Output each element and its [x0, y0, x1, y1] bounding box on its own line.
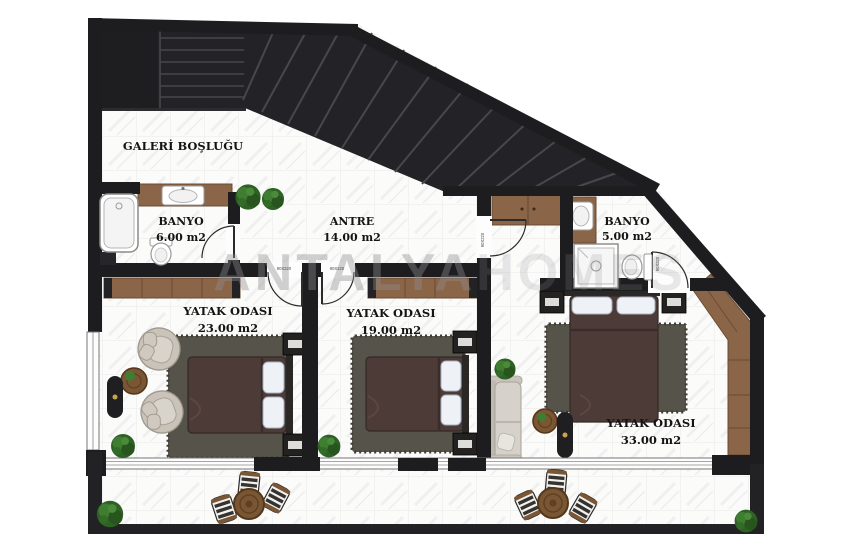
- room-label-galeri: GALERİ BOŞLUĞU: [123, 139, 243, 153]
- plant-antre-1: [235, 184, 260, 209]
- door-size-label: 90X220: [330, 266, 345, 271]
- watermark: ANTALYAHOMES: [213, 244, 687, 302]
- room-label-banyo-right: BANYO: [604, 215, 650, 228]
- door-size-label: 90X220: [277, 266, 292, 271]
- floor-plan-svg: ANTALYAHOMES GALERİ BOŞLUĞU BANYO 6.00 m…: [0, 0, 850, 550]
- room-area-bedroom-middle: 19.00 m2: [361, 323, 421, 337]
- wall-left: [88, 18, 102, 332]
- floor-plan-page: ANTALYAHOMES GALERİ BOŞLUĞU BANYO 6.00 m…: [0, 0, 850, 550]
- door-size-label: 90X220: [655, 256, 660, 271]
- door-size-label: 90X220: [480, 232, 485, 247]
- plant-balcony-left: [97, 501, 123, 527]
- plant-bedroom-right: [494, 358, 515, 379]
- room-area-banyo-left: 6.00 m2: [156, 231, 206, 244]
- balcony-table-left: [234, 489, 264, 519]
- room-area-bedroom-left: 23.00 m2: [198, 321, 258, 335]
- wall-right: [750, 316, 764, 464]
- wall-hall-top: [443, 186, 655, 196]
- side-table: [121, 368, 147, 394]
- utility-box: [100, 252, 116, 265]
- room-label-bedroom-right: YATAK ODASI: [605, 416, 695, 430]
- plant-antre-2: [262, 188, 284, 210]
- side-table: [533, 409, 557, 433]
- plant-bedroom-left: [111, 434, 135, 458]
- room-label-bedroom-left: YATAK ODASI: [182, 304, 272, 318]
- room-label-bedroom-middle: YATAK ODASI: [345, 306, 435, 320]
- room-label-banyo-left: BANYO: [158, 215, 204, 228]
- room-area-banyo-right: 5.00 m2: [602, 230, 652, 243]
- table-plant: [125, 371, 135, 381]
- watermark-part2: HOMES: [476, 244, 687, 302]
- plant-balcony-right: [735, 510, 758, 533]
- room-area-bedroom-right: 33.00 m2: [621, 433, 681, 447]
- watermark-part1: ANTALYA: [213, 244, 476, 302]
- room-label-antre: ANTRE: [329, 215, 374, 228]
- room-area-antre: 14.00 m2: [323, 231, 381, 244]
- bathtub: [100, 194, 138, 252]
- plant-bedroom-middle: [318, 435, 341, 458]
- balcony-table-right: [538, 488, 568, 518]
